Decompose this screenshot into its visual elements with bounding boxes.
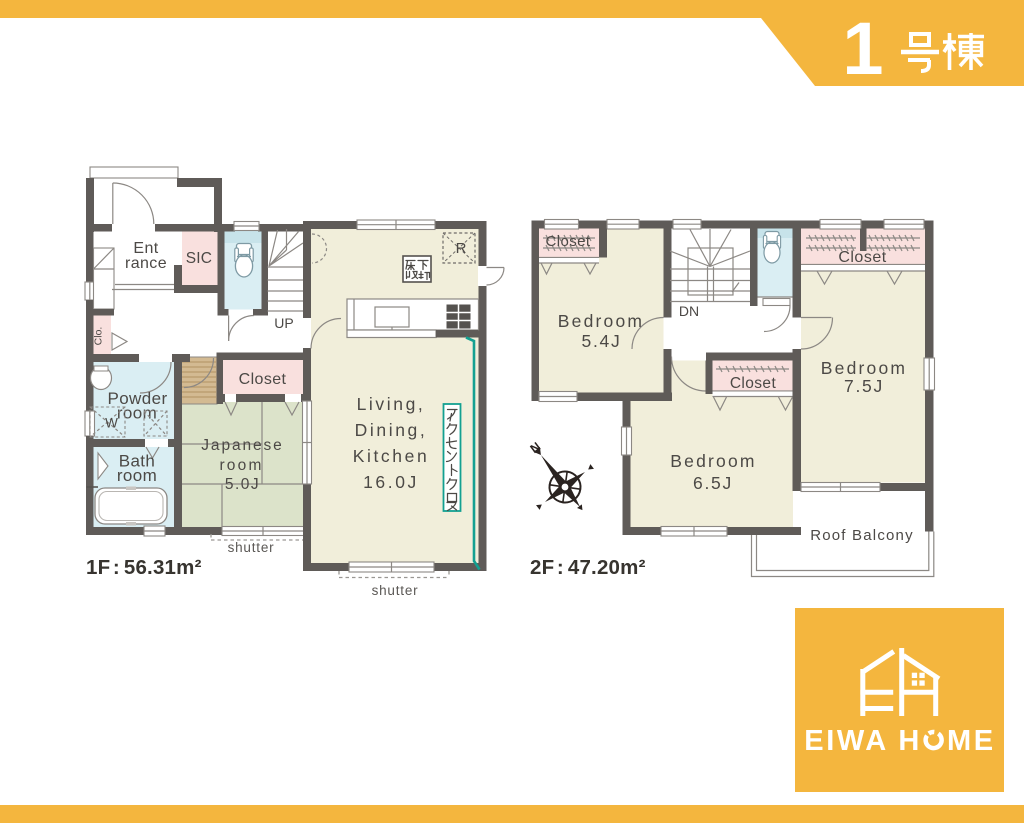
svg-text:Closet: Closet <box>546 233 591 250</box>
svg-text:Bedroom: Bedroom <box>821 358 907 378</box>
svg-text:16.0J: 16.0J <box>363 472 419 492</box>
svg-text:room: room <box>117 466 157 485</box>
svg-text:Closet: Closet <box>838 249 886 266</box>
svg-text:Clo.: Clo. <box>93 327 105 346</box>
svg-text:Japanese: Japanese <box>201 437 283 454</box>
svg-text:room: room <box>117 404 157 423</box>
svg-text:Kitchen: Kitchen <box>353 446 430 466</box>
svg-text:Bedroom: Bedroom <box>670 451 756 471</box>
svg-text:7.5J: 7.5J <box>844 376 884 396</box>
svg-text:R: R <box>456 240 467 257</box>
svg-text:W: W <box>105 416 118 431</box>
svg-text:Closet: Closet <box>239 371 287 388</box>
svg-text:2F:47.20m²: 2F:47.20m² <box>530 556 646 579</box>
svg-text:1: 1 <box>842 7 883 90</box>
svg-text:SIC: SIC <box>186 250 212 267</box>
svg-text:EIWA HOME: EIWA HOME <box>804 725 996 757</box>
svg-text:Bedroom: Bedroom <box>558 311 644 331</box>
svg-text:Living,: Living, <box>357 394 426 414</box>
svg-text:5.4J: 5.4J <box>582 331 622 351</box>
svg-text:Closet: Closet <box>730 375 777 392</box>
svg-text:UP: UP <box>274 315 293 331</box>
svg-text:room: room <box>219 457 263 474</box>
svg-text:DN: DN <box>679 303 699 319</box>
svg-text:shutter: shutter <box>372 583 419 598</box>
svg-text:6.5J: 6.5J <box>693 473 733 493</box>
svg-text:shutter: shutter <box>228 540 275 555</box>
svg-text:Roof Balcony: Roof Balcony <box>810 527 914 544</box>
svg-text:1F:56.31m²: 1F:56.31m² <box>86 556 202 579</box>
svg-text:rance: rance <box>125 255 167 272</box>
svg-text:5.0J: 5.0J <box>225 476 260 493</box>
svg-text:Dining,: Dining, <box>355 420 428 440</box>
